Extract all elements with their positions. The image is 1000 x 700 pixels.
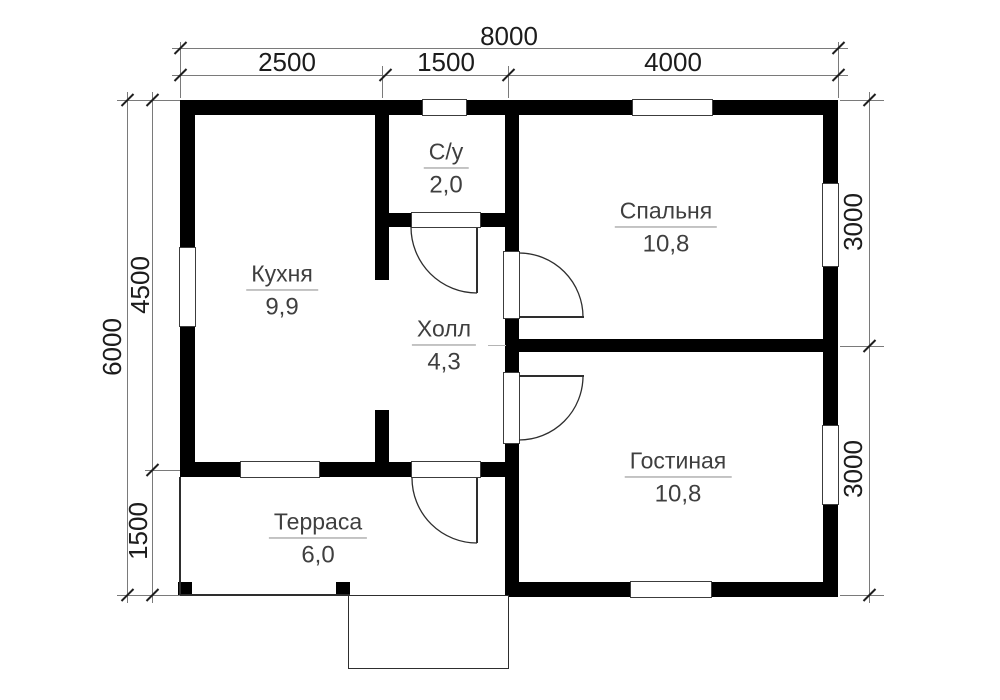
wall-kitchen-terrace [180,462,240,477]
terrace-edge-bottom [180,594,350,596]
room-area: 10,8 [643,228,690,259]
room-label-terrace: Терраса 6,0 [269,508,367,569]
wall-bottom [508,582,630,597]
dim-top-total: 8000 [480,23,538,49]
extension-line [180,42,181,98]
door-leaf-bathroom [476,228,478,293]
extension-line [840,100,884,101]
dim-right-3000-top: 3000 [840,193,866,251]
room-name: Спальня [615,197,717,227]
room-name: С/у [424,138,469,168]
extension-line [838,42,839,98]
living-room-door-arc [519,376,583,440]
wall-top [467,100,632,115]
terrace-steps [348,595,509,669]
window-bedroom-right [822,183,839,267]
terrace-door-arc [412,478,477,543]
wall-kitchen-terrace [320,462,412,477]
door-leaf-terrace [476,478,478,543]
dim-top-1500: 1500 [417,49,475,75]
room-area: 9,9 [265,291,298,322]
room-label-living-room: Гостиная 10,8 [625,447,732,508]
wall-left [180,100,195,247]
room-area: 10,8 [655,478,702,509]
wall-hall-right [505,443,519,595]
wall-left [180,327,195,477]
bathroom-door-arc [411,227,477,293]
terrace-edge-left [179,477,181,595]
dim-right-3000-bottom: 3000 [840,440,866,498]
dim-left-1500: 1500 [125,502,151,560]
wall-hall-right [505,100,519,252]
room-area: 2,0 [429,169,462,200]
wall-top [713,100,838,115]
door-opening-bedroom [503,251,520,319]
window-living-right [822,425,839,505]
divider-axis-mark [488,345,506,346]
wall-bottom [712,582,838,597]
room-name: Холл [412,315,476,345]
door-leaf-living-room [519,375,584,377]
room-name: Кухня [246,260,318,290]
extension-line [840,595,884,596]
window-bathroom-top [422,99,467,116]
extension-line [382,66,383,98]
dim-left-total: 6000 [99,318,125,376]
window-kitchen-left [179,247,196,327]
window-kitchen-terrace [240,461,320,478]
bedroom-door-arc [519,253,583,317]
extension-line [508,66,509,98]
room-label-hall: Холл 4,3 [412,315,476,376]
room-label-bathroom: С/у 2,0 [424,138,469,199]
window-living-bottom [630,581,712,598]
room-area: 6,0 [301,539,334,570]
wall-bathroom-bottom [389,213,412,227]
wall-kitchen-hall [375,410,389,477]
room-label-kitchen: Кухня 9,9 [246,260,318,321]
wall-bedroom-living-divider [505,339,823,352]
room-name: Терраса [269,508,367,538]
wall-bathroom-bottom [480,213,505,227]
room-area: 4,3 [427,346,460,377]
dim-top-2500: 2500 [258,49,316,75]
extension-line [840,346,884,347]
window-bedroom-top [632,99,713,116]
wall-right [823,100,838,183]
door-leaf-bedroom [519,316,584,318]
dim-left-4500: 4500 [127,256,153,314]
floor-plan: Кухня 9,9 С/у 2,0 Холл 4,3 Спальня 10,8 … [0,0,1000,700]
room-name: Гостиная [625,447,732,477]
room-label-bedroom: Спальня 10,8 [615,197,717,258]
door-opening-bathroom [411,212,481,228]
door-opening-terrace [411,461,481,478]
dim-top-4000: 4000 [644,49,702,75]
wall-right [823,267,838,425]
door-opening-living-room [503,372,520,444]
wall-kitchen-hall [375,100,389,280]
